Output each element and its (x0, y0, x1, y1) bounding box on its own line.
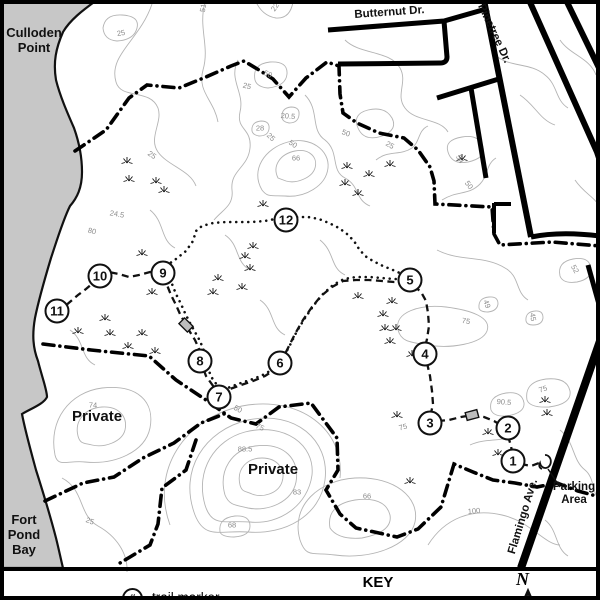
marsh-icon (150, 347, 161, 354)
road-branch-1 (437, 78, 502, 98)
trail-marker-2: 2 (496, 416, 521, 441)
structure-marker (179, 318, 193, 332)
trail-marker-6: 6 (268, 351, 293, 376)
contour-elevation-label: 51 (198, 3, 208, 13)
marsh-icon (240, 252, 251, 259)
compass-arrow-icon (525, 589, 532, 600)
marsh-icon (540, 396, 551, 403)
map-canvas (0, 0, 600, 600)
water-label-culloden-point: Culloden Point (2, 25, 66, 55)
marsh-icon (542, 409, 553, 416)
water-label-fort-pond-bay: Fort Pond Bay (2, 512, 46, 557)
marsh-icon (391, 324, 402, 331)
contour-elevation-label: 66 (292, 154, 300, 163)
structure-marker (465, 410, 479, 421)
key-marker-label: trail marker (152, 590, 220, 600)
marsh-icon (385, 160, 396, 167)
contour-elevation-label: 66 (363, 492, 371, 501)
marsh-icon (100, 314, 111, 321)
marsh-icon (208, 288, 219, 295)
trail-dashed (57, 272, 539, 466)
parking-area-label: Parking Area (548, 481, 600, 507)
compass-north-label: N (516, 569, 529, 590)
marsh-icon (124, 175, 135, 182)
marsh-symbols (73, 154, 553, 484)
contour-elevation-label: 25 (116, 28, 126, 38)
marsh-icon (258, 200, 269, 207)
road-parallel-4 (588, 265, 600, 308)
trail-map: Culloden Point Fort Pond Bay Private Pri… (0, 0, 600, 600)
private-area-label-west: Private (72, 408, 122, 425)
road-flamingo (521, 341, 600, 568)
marsh-icon (105, 329, 116, 336)
trail-marker-11: 11 (45, 299, 70, 324)
marsh-icon (392, 411, 403, 418)
marsh-icon (213, 274, 224, 281)
road-branch-2 (471, 88, 486, 178)
marsh-icon (137, 249, 148, 256)
contour-elevation-label: 20.5 (280, 111, 295, 121)
contour-elevation-label: 100 (467, 506, 480, 516)
trail-marker-10: 10 (88, 264, 113, 289)
marsh-icon (248, 242, 259, 249)
trail-marker-3: 3 (418, 411, 443, 436)
marsh-icon (483, 428, 494, 435)
marsh-icon (159, 186, 170, 193)
marsh-icon (380, 324, 391, 331)
marsh-icon (353, 189, 364, 196)
marsh-icon (378, 310, 389, 317)
marsh-icon (73, 327, 84, 334)
contour-elevation-label: 83 (293, 488, 301, 497)
contour-elevation-label: 88.5 (238, 445, 253, 454)
contour-elevation-label: 45 (528, 312, 538, 322)
marsh-icon (123, 342, 134, 349)
marsh-icon (405, 477, 416, 484)
key-title: KEY (338, 574, 418, 591)
marsh-icon (237, 283, 248, 290)
contour-elevation-label: 28 (256, 124, 264, 133)
road-parallel-2 (529, 0, 600, 161)
marsh-icon (137, 329, 148, 336)
marsh-icon (353, 292, 364, 299)
trail-marker-4: 4 (413, 342, 438, 367)
marsh-icon (387, 297, 398, 304)
marsh-icon (151, 177, 162, 184)
contour-elevation-label: 90.5 (496, 397, 511, 407)
marsh-icon (147, 288, 158, 295)
road-connector-east (531, 234, 600, 237)
trail-marker-12: 12 (274, 208, 299, 233)
trail-marker-8: 8 (188, 349, 213, 374)
trail-marker-9: 9 (151, 261, 176, 286)
marsh-icon (122, 157, 133, 164)
marsh-icon (342, 162, 353, 169)
trail-marker-7: 7 (207, 385, 232, 410)
contour-elevation-label: 75 (461, 316, 471, 326)
private-area-label-south: Private (248, 461, 298, 478)
trail-marker-1: 1 (501, 449, 526, 474)
key-panel-divider (0, 567, 600, 571)
marsh-icon (364, 170, 375, 177)
contour-elevation-label: 68 (228, 521, 236, 530)
parking-symbol (539, 455, 551, 469)
marsh-icon (385, 337, 396, 344)
trail-marker-5: 5 (398, 268, 423, 293)
